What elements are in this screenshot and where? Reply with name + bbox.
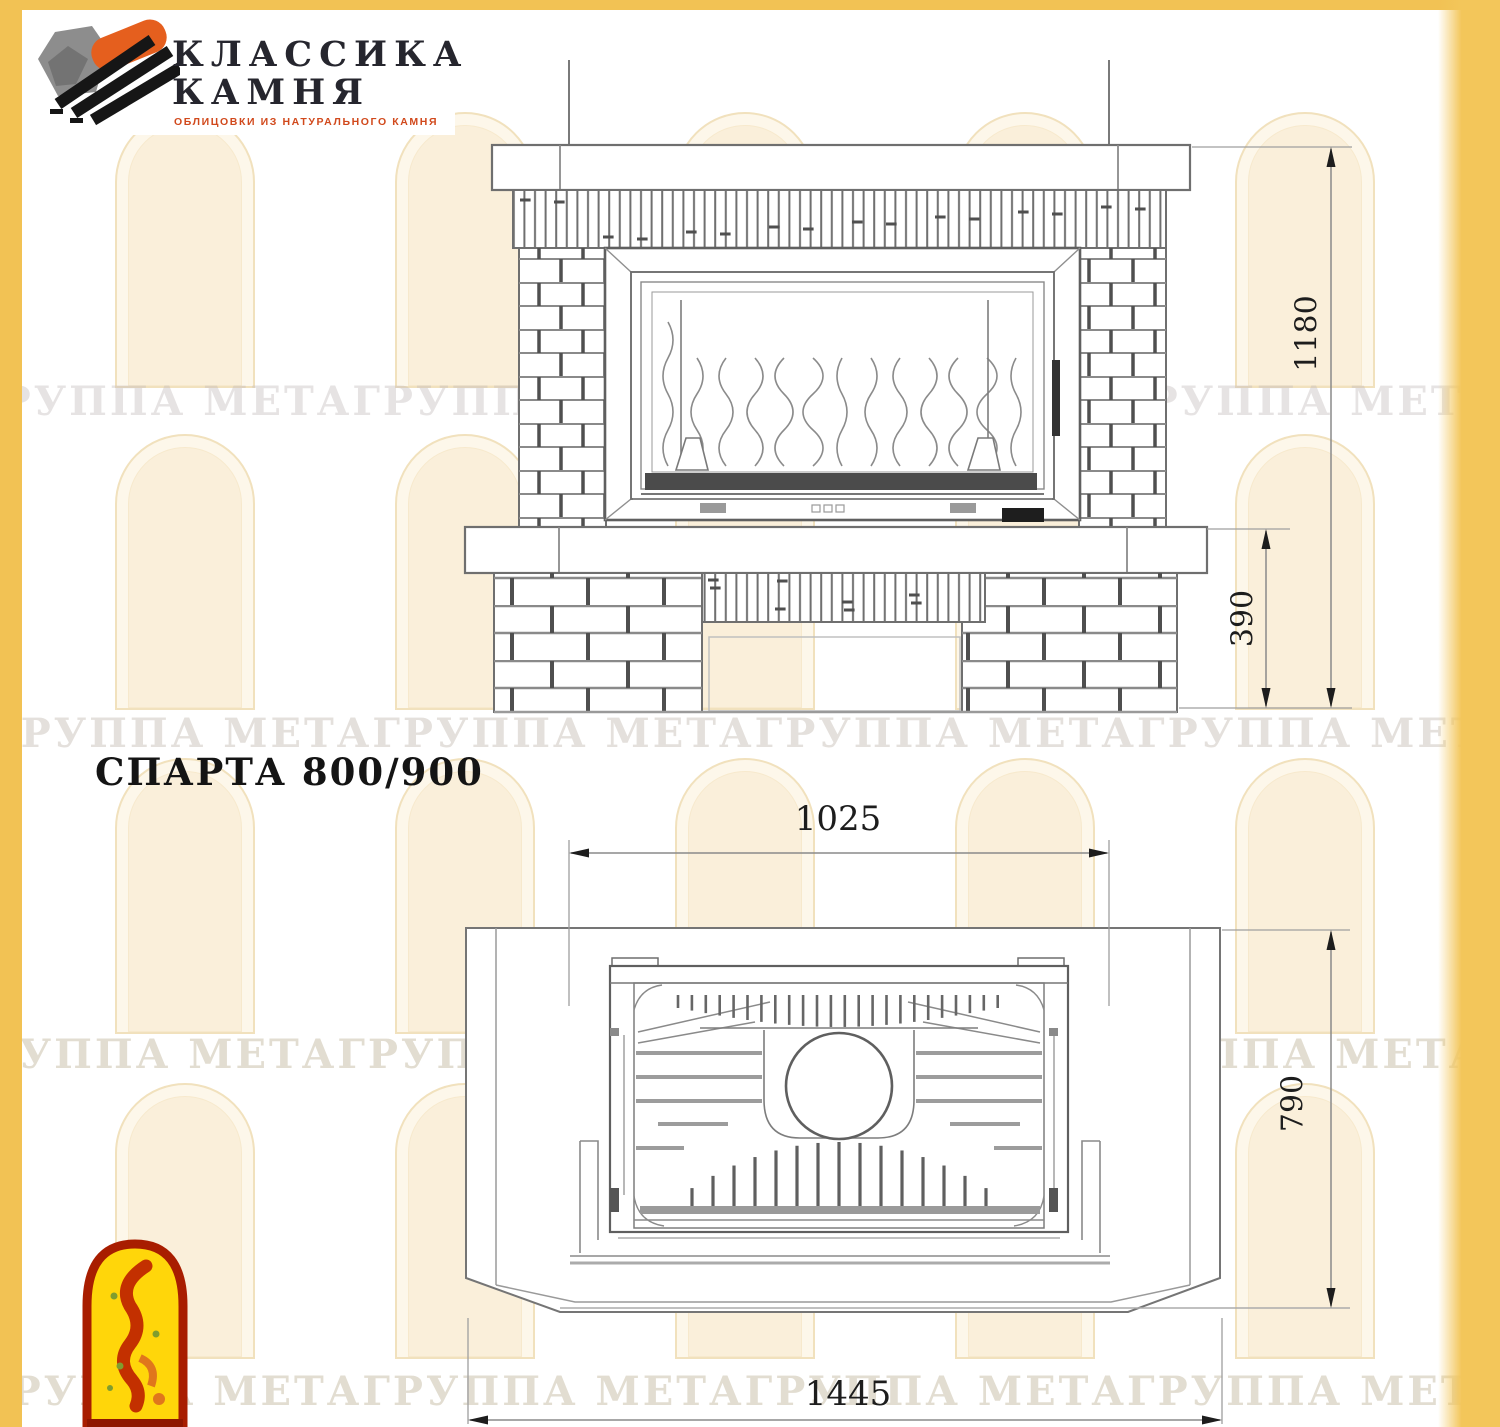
frame-border-right: [1438, 0, 1500, 1427]
tile-band-top: [513, 190, 1166, 248]
chimney-lines: [569, 60, 1109, 147]
catalog-page: ГРУППА МЕТАГРУППА МЕТАГРУППА МЕТАГРУППА …: [0, 0, 1500, 1427]
brand-name-line1: КЛАССИКА: [172, 34, 468, 75]
base-right-pillar: [962, 573, 1177, 712]
brand-tagline: ОБЛИЦОВКИ ИЗ НАТУРАЛЬНОГО КАМНЯ: [174, 116, 438, 128]
frame-border-left: [0, 0, 22, 1427]
brick-column-left: [519, 248, 606, 530]
base-tile-band: [702, 573, 985, 622]
stone-logo-icon: [30, 14, 180, 134]
dim-label-depth: 790: [1276, 1074, 1311, 1134]
brand-logo: КЛАССИКА КАМНЯ ОБЛИЦОВКИ ИЗ НАТУРАЛЬНОГО…: [22, 10, 455, 135]
dim-label-total-width: 1445: [778, 1374, 918, 1414]
door-handle: [1052, 360, 1060, 436]
plan-view: [466, 928, 1220, 1312]
dim-label-height: 1180: [1290, 294, 1325, 374]
front-dimensions: [1179, 147, 1352, 708]
wood-niche: [709, 637, 960, 711]
dim-label-top-width: 1025: [768, 799, 908, 839]
ash-drawer-handle: [1002, 508, 1044, 522]
vent-right: [950, 503, 976, 513]
firebox-insert: [605, 248, 1080, 522]
dim-label-base-height: 390: [1226, 589, 1261, 649]
brick-column-right: [1079, 248, 1166, 530]
meta-group-logo: [80, 1238, 190, 1427]
brand-name-line2: КАМНЯ: [172, 72, 370, 113]
vent-left: [700, 503, 726, 513]
top-shelf: [492, 145, 1190, 190]
plan-insert: [610, 958, 1068, 1238]
front-view: [465, 60, 1207, 712]
base-left-pillar: [494, 573, 702, 712]
frame-border-top: [0, 0, 1500, 10]
lower-shelf: [465, 527, 1207, 573]
model-title: СПАРТА 800/900: [95, 750, 484, 794]
ash-lip: [645, 473, 1037, 490]
flue-collar-circle: [786, 1033, 892, 1139]
fireplace-technical-drawing: [0, 0, 1500, 1427]
